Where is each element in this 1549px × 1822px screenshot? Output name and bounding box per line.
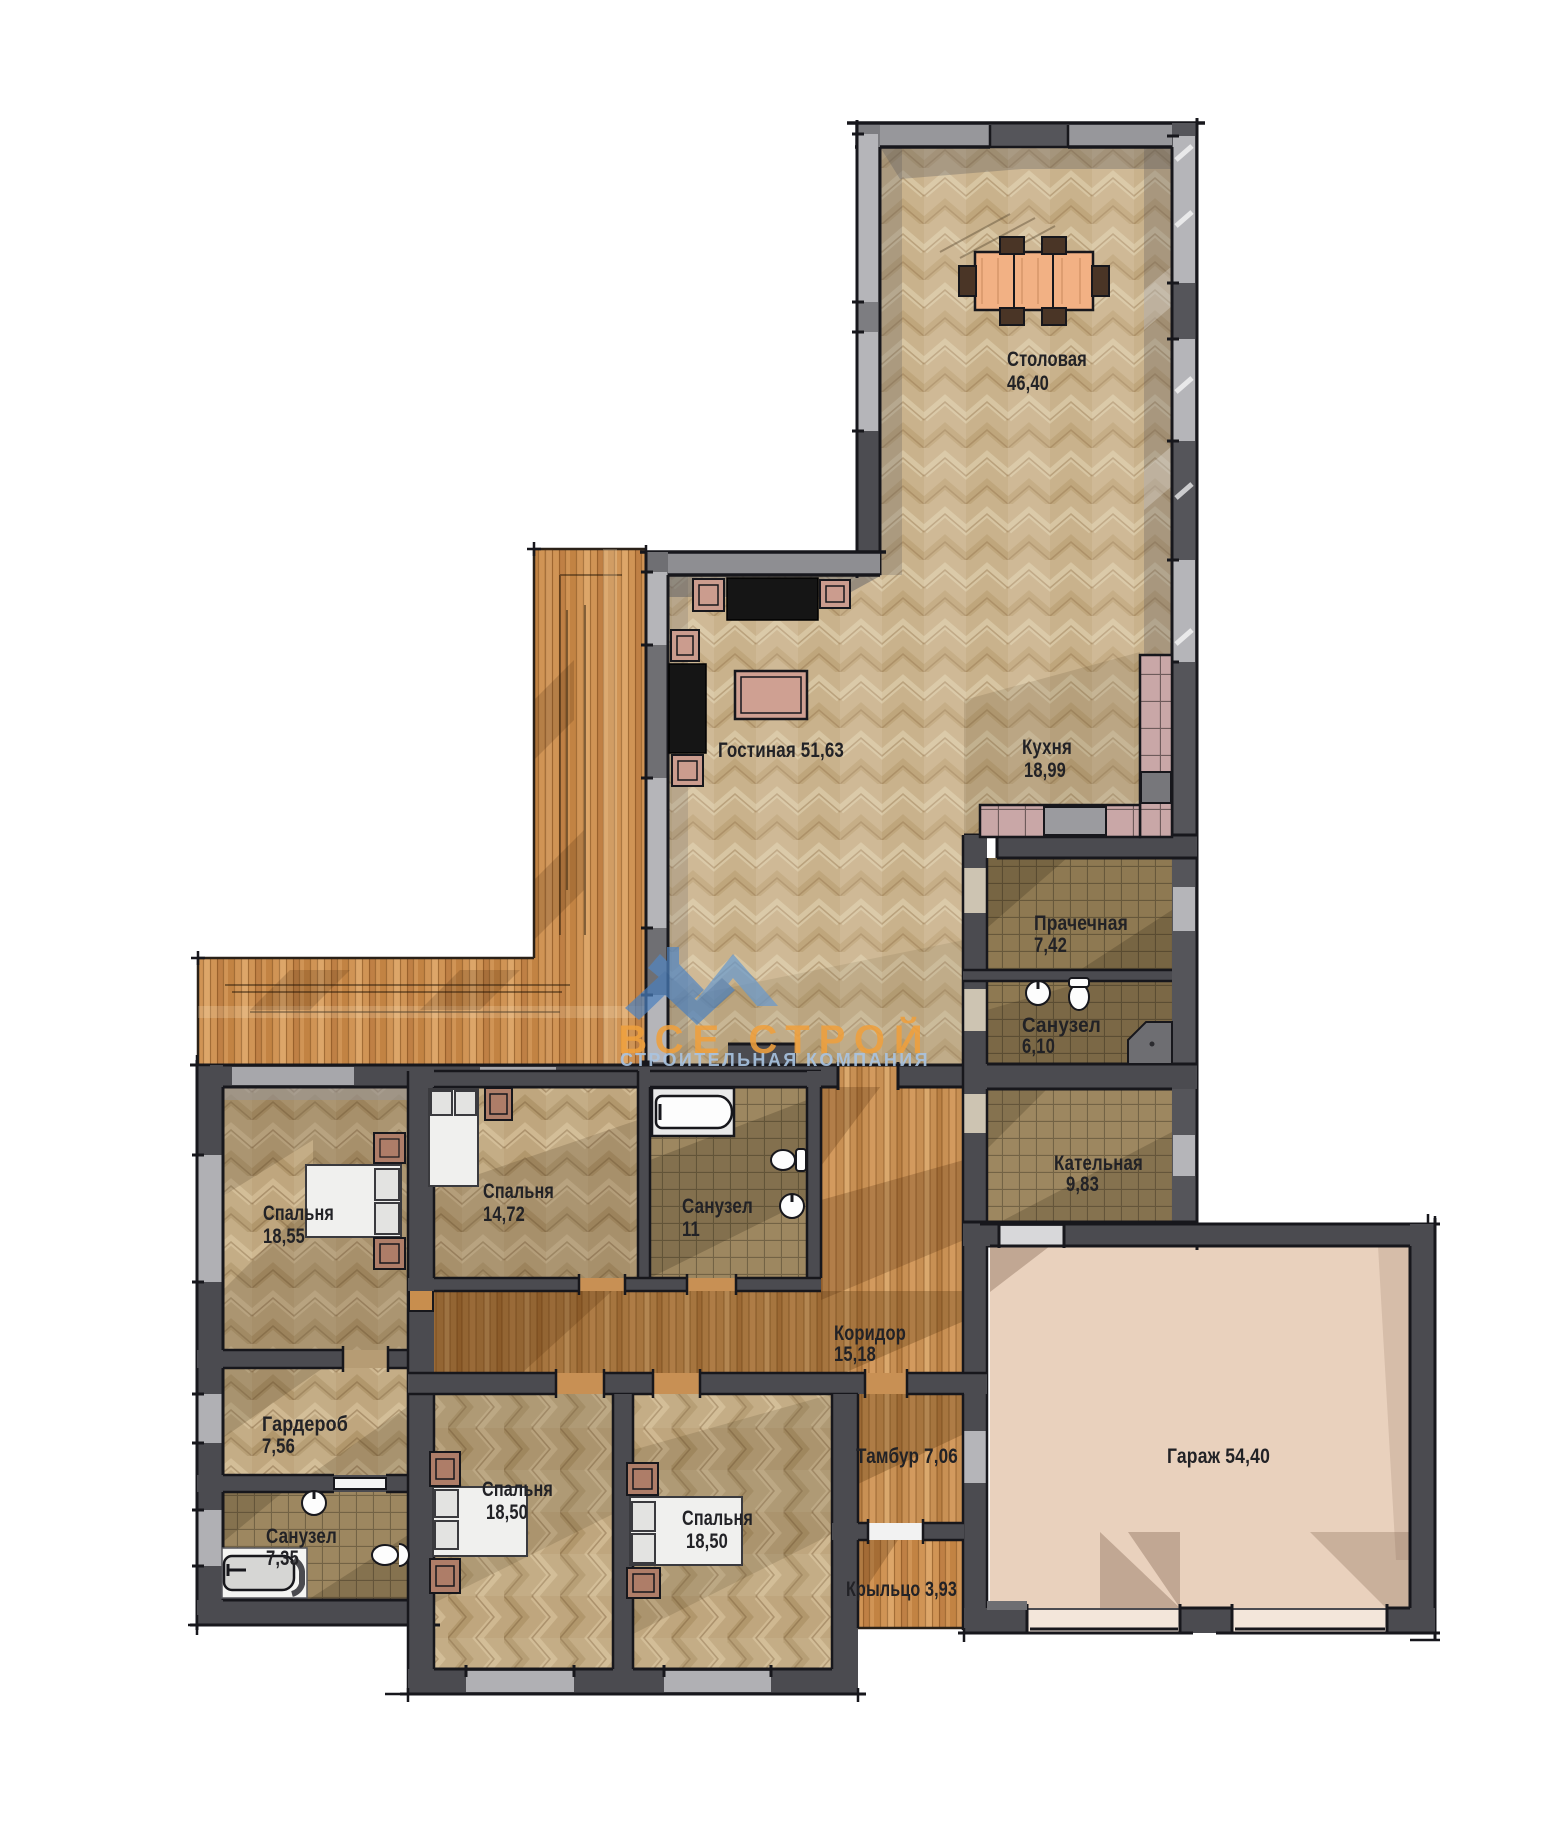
- svg-text:18,55: 18,55: [263, 1225, 305, 1248]
- svg-text:7,42: 7,42: [1034, 934, 1067, 957]
- svg-text:7,56: 7,56: [262, 1435, 295, 1458]
- svg-text:СТРОИТЕЛЬНАЯ КОМПАНИЯ: СТРОИТЕЛЬНАЯ КОМПАНИЯ: [620, 1050, 930, 1070]
- svg-text:Спальня: Спальня: [682, 1507, 753, 1530]
- svg-text:Тамбур 7,06: Тамбур 7,06: [856, 1445, 958, 1468]
- svg-text:Коридор: Коридор: [834, 1322, 906, 1345]
- svg-text:Гардероб: Гардероб: [262, 1413, 348, 1436]
- svg-text:Гараж 54,40: Гараж 54,40: [1167, 1445, 1270, 1468]
- svg-text:7,35: 7,35: [266, 1547, 299, 1570]
- svg-text:Спальня: Спальня: [482, 1478, 553, 1501]
- svg-text:Кухня: Кухня: [1022, 736, 1072, 759]
- svg-text:11: 11: [682, 1218, 700, 1241]
- svg-text:Столовая: Столовая: [1007, 348, 1087, 371]
- svg-text:18,50: 18,50: [486, 1501, 528, 1524]
- svg-text:Санузел: Санузел: [266, 1525, 337, 1548]
- svg-text:Санузел: Санузел: [682, 1195, 753, 1218]
- svg-text:14,72: 14,72: [483, 1203, 525, 1226]
- svg-text:6,10: 6,10: [1022, 1035, 1055, 1058]
- svg-text:Крыльцо 3,93: Крыльцо 3,93: [846, 1578, 957, 1601]
- svg-text:9,83: 9,83: [1066, 1173, 1099, 1196]
- svg-text:46,40: 46,40: [1007, 372, 1049, 395]
- svg-text:Прачечная: Прачечная: [1034, 912, 1128, 935]
- svg-text:Спальня: Спальня: [263, 1202, 334, 1225]
- svg-text:Санузел: Санузел: [1022, 1014, 1101, 1037]
- svg-text:Кательная: Кательная: [1054, 1152, 1143, 1175]
- svg-text:Спальня: Спальня: [483, 1180, 554, 1203]
- svg-text:Гостиная 51,63: Гостиная 51,63: [718, 739, 844, 762]
- svg-text:18,50: 18,50: [686, 1530, 728, 1553]
- svg-text:18,99: 18,99: [1024, 759, 1066, 782]
- svg-text:15,18: 15,18: [834, 1343, 876, 1366]
